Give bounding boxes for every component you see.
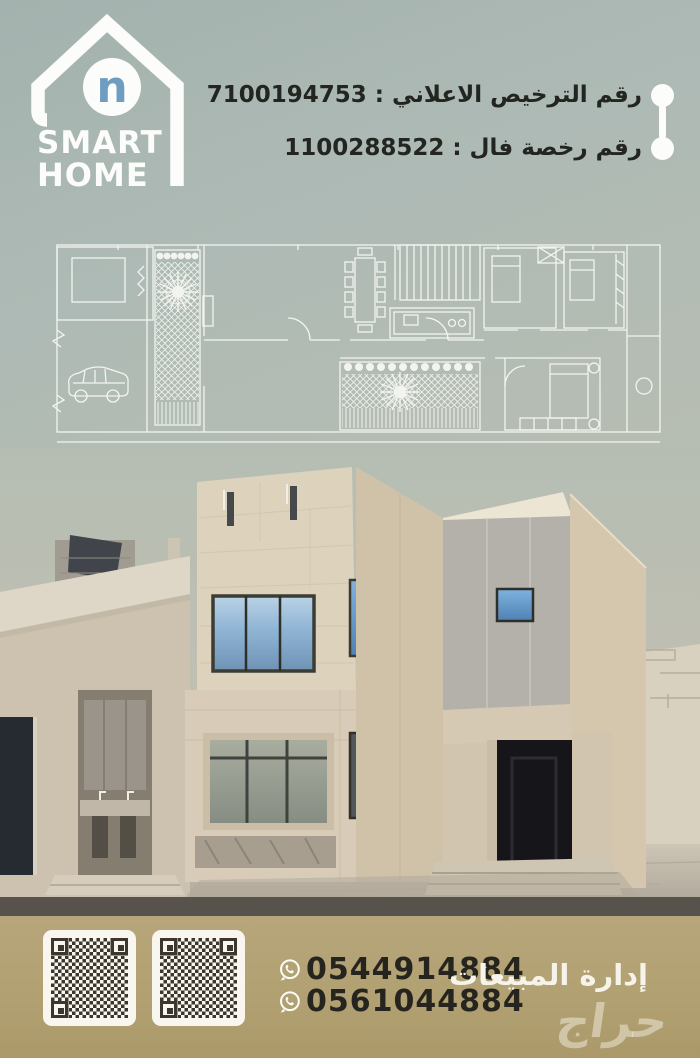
timeline-connector-icon [651, 84, 674, 160]
whatsapp-icon [276, 989, 303, 1016]
qr-code[interactable] [152, 930, 245, 1026]
logo-text-home: HOME [37, 156, 149, 194]
floor-plan-drawing [48, 236, 666, 450]
footer-bar: 0544914884 0561044884 إدارة المبيعات حرا… [0, 916, 700, 1058]
ad-license-text: رقم الترخيص الاعلاني : 7100194753 [207, 80, 642, 110]
villa-photo [0, 448, 700, 916]
logo-monogram: n [96, 62, 127, 113]
sales-department-label: إدارة المبيعات [449, 958, 648, 992]
real-estate-poster: n SMART HOME رقم الترخيص الاعلاني : 7100… [0, 0, 700, 1058]
qr-code[interactable] [43, 930, 136, 1026]
whatsapp-icon [276, 957, 303, 984]
license-block: رقم الترخيص الاعلاني : 7100194753 رقم رخ… [207, 80, 674, 163]
house-logo-icon: n SMART HOME [28, 14, 203, 196]
haraj-watermark: حراج [554, 994, 672, 1048]
fal-license-text: رقم رخصة فال : 1100288522 [284, 133, 642, 163]
